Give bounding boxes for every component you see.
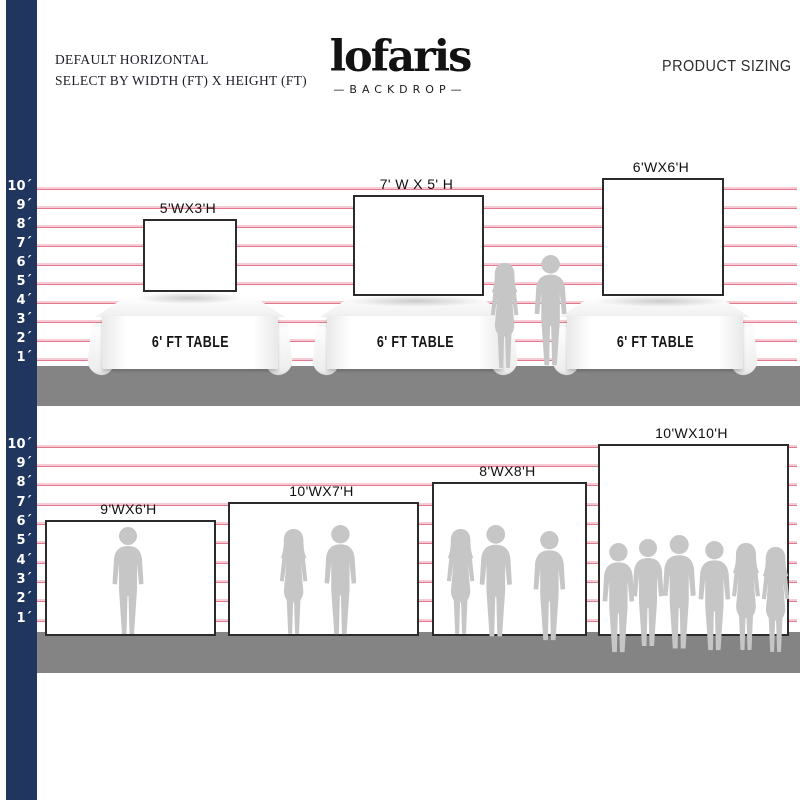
brand-logo: lofaris —BACKDROP— — [300, 36, 500, 96]
trio-silhouette — [441, 516, 575, 644]
brand-name: lofaris — [300, 36, 500, 79]
backdrop-7x5 — [353, 195, 484, 296]
group-silhouette — [598, 528, 792, 662]
table-front: 6' FT TABLE — [102, 316, 278, 369]
table-label: 6' FT TABLE — [151, 334, 228, 352]
ruler-tick-bottom-5: 5´ — [6, 532, 32, 550]
table-1: 6' FT TABLE — [95, 297, 285, 375]
ruler-tick-bottom-6: 6´ — [6, 513, 32, 531]
ruler-tick-top-4: 4´ — [6, 292, 32, 310]
header-subtitle-line1: DEFAULT HORIZONTAL — [55, 50, 307, 71]
table-label: 6' FT TABLE — [376, 334, 453, 352]
ruler-tick-bottom-7: 7´ — [6, 494, 32, 512]
ruler-tick-top-3: 3´ — [6, 311, 32, 329]
page-title: PRODUCT SIZING — [662, 58, 792, 76]
ruler-tick-top-6: 6´ — [6, 254, 32, 272]
ruler-tick-top-5: 5´ — [6, 273, 32, 291]
couple-silhouette-floor — [272, 520, 364, 638]
backdrop-shadow — [345, 295, 487, 307]
backdrop-9x6-label: 9'WX6'H — [45, 501, 212, 517]
backdrop-shadow — [594, 295, 728, 307]
backdrop-10x7-label: 10'WX7'H — [228, 483, 415, 499]
table-front: 6' FT TABLE — [567, 316, 743, 369]
backdrop-shadow — [135, 292, 243, 304]
ruler-tick-top-1: 1´ — [6, 349, 32, 367]
header-subtitle: DEFAULT HORIZONTAL SELECT BY WIDTH (FT) … — [55, 50, 307, 92]
ruler-tick-bottom-1: 1´ — [6, 610, 32, 628]
backdrop-8x8-label: 8'WX8'H — [432, 463, 583, 479]
brand-tagline: —BACKDROP— — [300, 83, 500, 96]
product-sizing-chart: DEFAULT HORIZONTAL SELECT BY WIDTH (FT) … — [0, 0, 800, 800]
header-subtitle-line2: SELECT BY WIDTH (FT) X HEIGHT (FT) — [55, 71, 307, 92]
ruler-tick-bottom-9: 9´ — [6, 455, 32, 473]
ruler-tick-top-7: 7´ — [6, 235, 32, 253]
backdrop-5x3 — [143, 219, 237, 292]
couple-silhouette — [484, 252, 574, 372]
single-person-silhouette — [106, 524, 150, 636]
ruler-tick-bottom-10: 10´ — [6, 436, 32, 454]
ruler-tick-top-2: 2´ — [6, 330, 32, 348]
ruler-tick-top-8: 8´ — [6, 216, 32, 234]
ruler-tick-top-10: 10´ — [6, 178, 32, 196]
table-label: 6' FT TABLE — [616, 334, 693, 352]
ruler-tick-bottom-8: 8´ — [6, 474, 32, 492]
ruler-tick-bottom-4: 4´ — [6, 552, 32, 570]
backdrop-6x6-label: 6'WX6'H — [602, 159, 720, 175]
backdrop-5x3-label: 5'WX3'H — [143, 200, 233, 216]
ruler-tick-top-9: 9´ — [6, 197, 32, 215]
ruler-bar — [6, 0, 37, 800]
backdrop-10x10-label: 10'WX10'H — [598, 425, 785, 441]
table-3: 6' FT TABLE — [560, 297, 750, 375]
table-2: 6' FT TABLE — [320, 297, 510, 375]
table-front: 6' FT TABLE — [327, 316, 503, 369]
backdrop-6x6 — [602, 178, 724, 296]
ruler-tick-bottom-2: 2´ — [6, 590, 32, 608]
backdrop-7x5-label: 7' W X 5' H — [353, 176, 480, 192]
ruler-tick-bottom-3: 3´ — [6, 571, 32, 589]
